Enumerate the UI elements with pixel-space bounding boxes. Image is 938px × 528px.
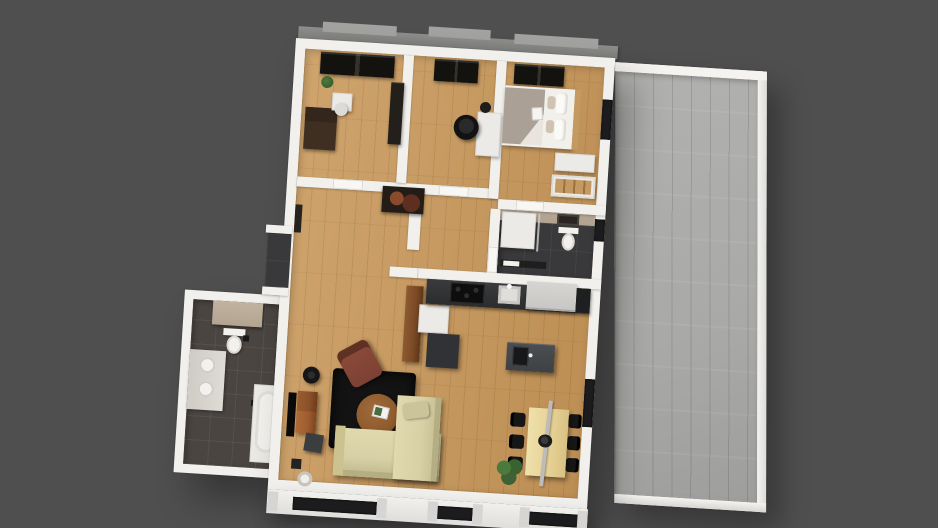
cooktop [450, 282, 485, 304]
dresser-bedroom-main [554, 153, 595, 173]
facade-pilaster-2 [376, 498, 387, 519]
wc-towel [503, 260, 519, 266]
kitchen-cabinet-dark [426, 333, 460, 369]
facade-pilaster-4 [472, 504, 483, 525]
dining-chair-l2 [509, 434, 525, 449]
dining-chair-r2 [567, 436, 581, 451]
bed-pillow-4 [546, 120, 555, 133]
hallway-picture [381, 186, 425, 215]
side-pot [291, 459, 302, 470]
window-wc [594, 219, 605, 242]
dresser-bedroom-left [303, 107, 338, 151]
wc-shower-partition [500, 211, 536, 249]
sofa-throw-pillow [402, 401, 430, 420]
dining-chair-r3 [565, 458, 579, 473]
burner-1 [455, 287, 460, 292]
door-bedroom-main [516, 200, 545, 212]
bath-mat-1 [243, 335, 249, 341]
bed-pillow-2 [554, 118, 566, 141]
open-shelf-unit [551, 174, 596, 199]
potted-plant [494, 457, 524, 487]
door-office [438, 185, 469, 197]
entrance-jamb-top [266, 224, 292, 234]
dining-chair-l1 [510, 412, 526, 427]
window-bedroom-main [600, 99, 612, 140]
render-canvas [0, 0, 938, 528]
terrace-parapet-right [757, 71, 767, 512]
entrance-niche [264, 233, 291, 288]
dining-chair-r1 [568, 414, 582, 429]
counter-appliance-dark [575, 288, 590, 313]
floor-plan [166, 14, 816, 528]
wall-kitchen-column [389, 266, 418, 278]
desk-office [475, 112, 502, 157]
terrace-door-dining [582, 379, 595, 428]
bathroom-half-wall [212, 300, 263, 327]
shelf-compartments [555, 179, 592, 195]
magazine-photo [374, 407, 383, 416]
wardrobe-office [434, 59, 479, 84]
bed-pillow-3 [547, 96, 556, 109]
terrace [614, 62, 766, 512]
facade-pilaster-6 [577, 511, 588, 528]
burner-3 [473, 288, 478, 293]
wardrobe-bedroom-left [320, 52, 395, 79]
kitchen-cabinet-white [418, 304, 450, 334]
wc-picture [557, 214, 580, 226]
wardrobe-bedroom-main [514, 64, 565, 87]
speaker [303, 433, 324, 454]
built-in-fridge [525, 281, 577, 312]
facade-pilaster-5 [519, 507, 530, 528]
facade-pilaster-3 [427, 501, 438, 522]
tv-sideboard [295, 391, 318, 434]
entrance-jamb-bottom [262, 286, 288, 296]
island-sink [512, 346, 529, 366]
burner-2 [464, 293, 469, 298]
facade-pilaster-1 [267, 491, 278, 512]
door-wc [487, 246, 499, 273]
door-bedroom-left [333, 179, 364, 191]
bed-pillow-1 [556, 93, 568, 116]
facade-window-2 [436, 506, 473, 521]
bed-book [531, 107, 543, 120]
terrace-deck [614, 71, 757, 503]
